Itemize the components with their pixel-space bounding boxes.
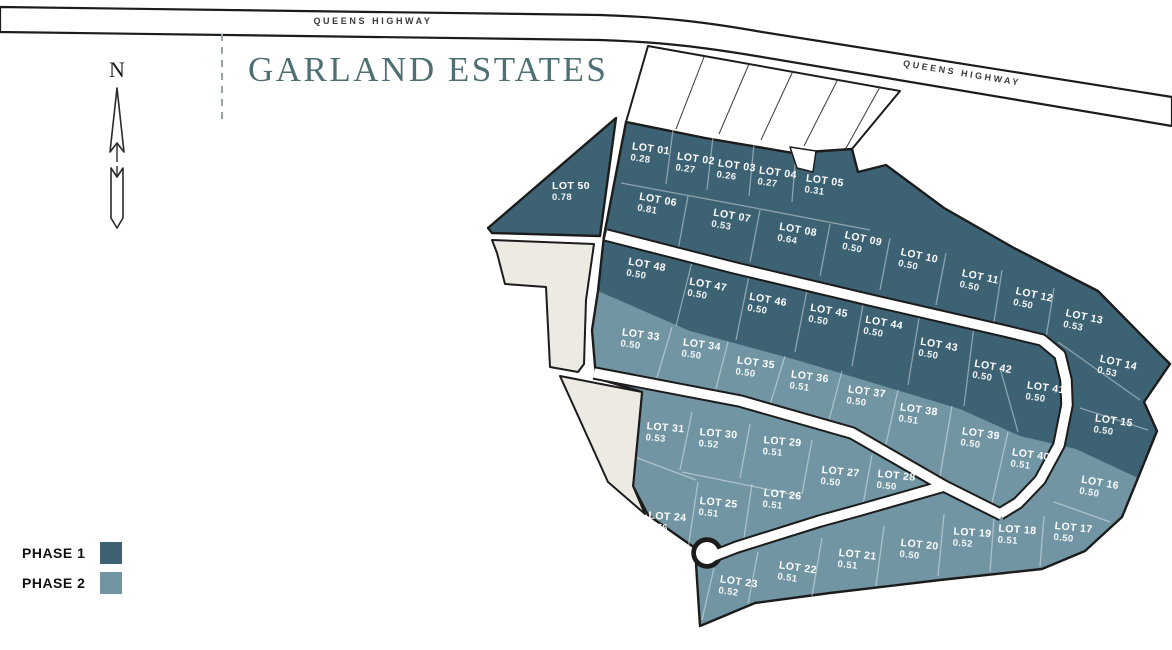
site-plan: QUEENS HIGHWAY QUEENS HIGHWAY GARLAND ES… [0,0,1172,650]
lot-label: LOT 29 0.51 [762,435,802,461]
lot-label: LOT 09 0.50 [841,230,883,260]
lot-label: LOT 15 0.50 [1093,413,1134,440]
lot-label: LOT 06 0.81 [636,192,677,221]
lot-label: LOT 18 0.51 [997,524,1036,549]
lot-label: LOT 12 0.50 [1012,286,1054,316]
lot-label: LOT 21 0.51 [837,548,877,574]
legend-item-phase1: PHASE 1 [22,542,122,564]
lot-label: LOT 48 0.50 [625,257,666,286]
lot-label: LOT 19 0.52 [952,527,991,552]
legend-item-phase2: PHASE 2 [22,572,122,594]
lot-label: LOT 27 0.50 [820,465,860,491]
lot-label: LOT 36 0.51 [789,369,830,396]
lot-acreage: 0.51 [762,447,801,461]
lot-label: LOT 20 0.50 [899,538,939,564]
lot-label: LOT 34 0.50 [681,337,722,364]
lot-label: LOT 22 0.51 [777,560,818,587]
lot-label: LOT 24 0.76 [647,511,686,536]
lot-label: LOT 44 0.50 [862,315,903,344]
legend-label-phase2: PHASE 2 [22,575,94,591]
lot-label: LOT 50 0.78 [552,181,590,203]
lot-label: LOT 07 0.53 [710,208,751,237]
lot-label: LOT 14 0.53 [1096,354,1138,384]
lot-label: LOT 02 0.27 [675,151,716,178]
lot-label: LOT 38 0.51 [898,402,939,429]
lot-acreage: 0.51 [997,535,1036,548]
lot-label: LOT 41 0.50 [1025,380,1066,407]
lot-label: LOT 11 0.50 [958,268,999,298]
lot-label: LOT 33 0.50 [620,327,661,354]
lot-label: LOT 16 0.50 [1078,475,1119,504]
lot-label: LOT 10 0.50 [897,247,939,277]
lot-acreage: 0.52 [952,538,991,551]
lot-labels-layer: LOT 01 0.28 LOT 02 0.27 LOT 03 0.26 LOT … [0,0,1172,650]
lot-label: LOT 42 0.50 [971,359,1012,388]
lot-label: LOT 31 0.53 [645,421,685,447]
lot-label: LOT 47 0.50 [686,277,727,306]
lot-label: LOT 01 0.28 [630,141,671,168]
lot-label: LOT 35 0.50 [735,355,776,382]
lot-label: LOT 08 0.64 [776,222,817,251]
legend-swatch-phase1 [100,542,122,564]
lot-acreage: 0.53 [645,433,684,447]
lot-acreage: 0.76 [647,522,686,535]
lot-label: LOT 23 0.52 [718,574,759,601]
legend-swatch-phase2 [100,572,122,594]
lot-label: LOT 40 0.51 [1010,447,1051,474]
lot-label: LOT 28 0.50 [876,469,916,495]
legend: PHASE 1 PHASE 2 [22,542,122,602]
lot-acreage: 0.52 [698,439,737,453]
lot-label: LOT 37 0.50 [846,384,887,411]
lot-label: LOT 43 0.50 [917,337,958,366]
lot-acreage: 0.78 [552,193,590,204]
legend-label-phase1: PHASE 1 [22,545,94,561]
lot-label: LOT 30 0.52 [698,427,738,453]
lot-number: LOT 50 [552,181,590,193]
lot-label: LOT 03 0.26 [716,158,757,185]
lot-label: LOT 45 0.50 [807,303,848,332]
lot-label: LOT 05 0.31 [804,173,845,200]
lot-label: LOT 26 0.51 [762,488,802,514]
lot-label: LOT 17 0.50 [1053,521,1093,547]
lot-label: LOT 13 0.53 [1062,308,1104,338]
lot-label: LOT 39 0.50 [960,426,1001,453]
lot-label: LOT 25 0.51 [698,496,738,522]
lot-label: LOT 04 0.27 [757,165,798,192]
lot-label: LOT 46 0.50 [746,292,787,321]
